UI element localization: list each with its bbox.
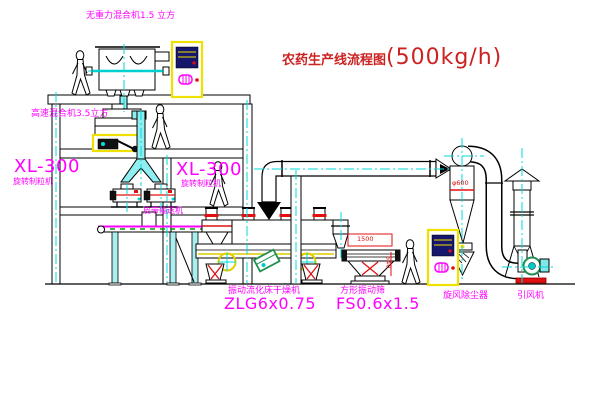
floor-slab-top xyxy=(48,95,250,104)
drawing-canvas: 无重力混合机1.5 立方 高速混合机3.5立方 XL-300 旋转制粒机 XL-… xyxy=(0,0,600,403)
label-belt-conveyor: 皮带输送机 xyxy=(143,207,183,215)
label-granulator-left-model: XL-300 xyxy=(14,158,80,176)
title-capacity: (500kg/h) xyxy=(386,45,502,70)
floor-slab-middle xyxy=(60,149,250,158)
label-granulator-right-name: 旋转制粒机 xyxy=(181,180,221,188)
label-gravity-mixer: 无重力混合机1.5 立方 xyxy=(86,12,175,21)
label-high-speed-mixer: 高速混合机3.5立方 xyxy=(31,110,108,119)
control-cabinet-top xyxy=(172,42,202,97)
dim-cyclone-diameter: φ600 xyxy=(452,180,469,187)
label-granulator-right-model: XL-300 xyxy=(176,161,242,179)
dryer-exhaust-hood xyxy=(257,202,281,220)
control-cabinet-ground xyxy=(428,230,458,285)
label-cyclone: 旋风除尘器 xyxy=(443,292,488,301)
fan-base xyxy=(516,278,546,283)
drawing-title: 农药生产线流程图(500kg/h) xyxy=(282,47,502,69)
dim-screen-length: 1500 xyxy=(357,236,374,243)
person-figure-1 xyxy=(72,51,90,95)
person-figure-4 xyxy=(402,240,420,284)
person-figure-2 xyxy=(152,105,170,149)
fluid-bed-dryer xyxy=(196,208,336,283)
label-dryer-model: ZLG6x0.75 xyxy=(224,296,316,312)
label-fan: 引风机 xyxy=(517,292,544,301)
title-text: 农药生产线流程图 xyxy=(282,53,386,68)
dim-screen-height: 540 xyxy=(385,256,392,268)
label-screen-model: FS0.6x1.5 xyxy=(336,296,420,312)
belt-conveyor xyxy=(98,226,209,285)
label-granulator-left-name: 旋转制粒机 xyxy=(13,178,53,186)
